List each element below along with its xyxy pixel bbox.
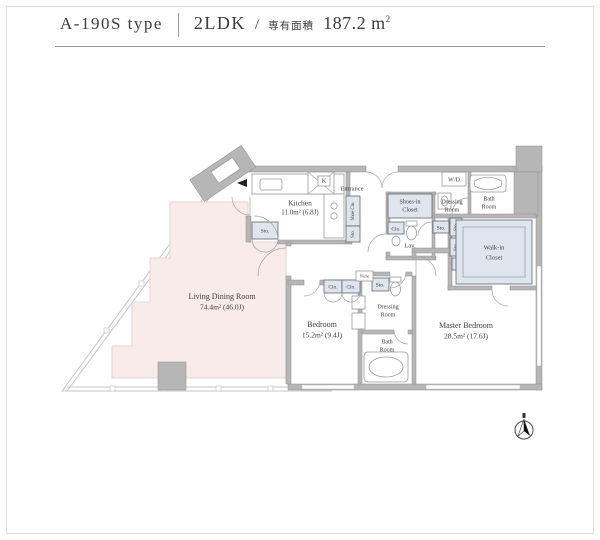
floor-plan: K Sto. Shoe Clo. Sto. Shoes-in Closet Cl… <box>0 0 600 540</box>
washbasin-lav <box>392 236 400 246</box>
walk-in-closet-label: Closet <box>486 254 503 261</box>
north-arrow-icon <box>515 413 533 439</box>
dressing-upper-label: Room <box>445 207 460 213</box>
sto-label: Sto. <box>376 282 385 288</box>
lav-label: Lav. <box>404 242 416 249</box>
bathtub-lower <box>364 352 408 382</box>
living-dining-size: 74.4m² (46.0J) <box>200 303 245 312</box>
clo-label: Clo. <box>391 226 401 232</box>
entrance-label: Entrance <box>340 185 363 192</box>
service-door-marker <box>237 179 247 187</box>
sto-label: Sto. <box>437 225 446 231</box>
toilet-upper <box>406 221 417 240</box>
dressing-lower-label: Room <box>381 312 396 318</box>
niche-label: Niche <box>360 273 370 278</box>
clo-label: Clo. <box>346 284 356 290</box>
sto-label: Sto. <box>261 228 270 234</box>
bath-upper-label: Room <box>482 204 497 210</box>
master-bedroom-label: Master Bedroom <box>439 321 494 330</box>
shoes-in-closet-label: Shoes-in <box>400 199 421 205</box>
master-bedroom-size: 28.5m² (17.6J) <box>444 332 489 341</box>
dressing-upper-label: Dressing <box>441 199 462 205</box>
bath-lower-label: Bath <box>381 339 392 345</box>
sto-label: Sto. <box>351 230 356 238</box>
living-dining-label: Living Dining Room <box>188 292 256 301</box>
walk-in-closet: Walk-in Closet <box>456 220 532 284</box>
kitchen-duct-box: K <box>308 172 334 194</box>
wd-label: W/D <box>448 177 460 183</box>
shoe-closet-label: Shoe Clo. <box>351 202 356 221</box>
kitchen-label: Kitchen <box>288 199 312 208</box>
bedroom-size: 15.2m² (9.4J) <box>302 331 343 340</box>
bathtub-upper <box>470 175 506 192</box>
bedroom-label: Bedroom <box>307 320 338 329</box>
bath-lower-label: Room <box>380 347 395 353</box>
clo-label: Clo. <box>328 284 338 290</box>
toilet-lower <box>390 277 401 296</box>
kitchen-size: 11.0m² (6.8J) <box>281 209 319 217</box>
shoes-in-closet-label: Closet <box>402 207 418 213</box>
bath-upper-label: Bath <box>483 196 494 202</box>
walk-in-closet-label: Walk-in <box>484 244 506 251</box>
kitchen-duct-label: K <box>322 177 327 184</box>
dressing-lower-label: Dressing <box>377 304 398 310</box>
